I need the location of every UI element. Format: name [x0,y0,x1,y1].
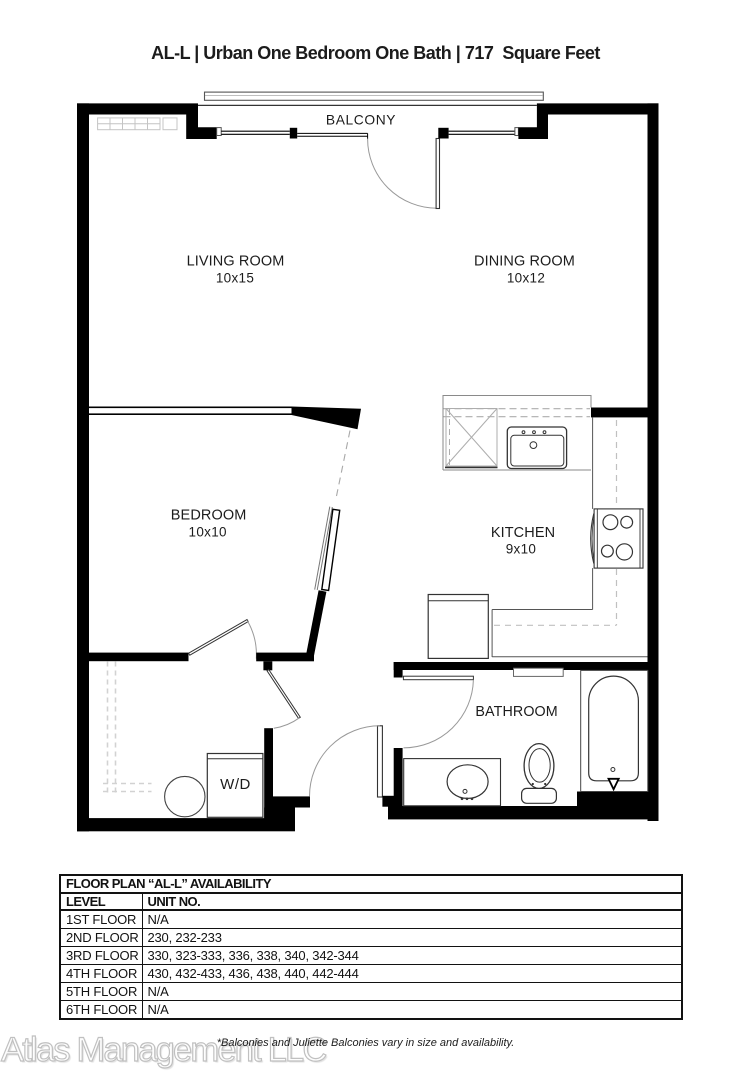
svg-text:KITCHEN: KITCHEN [491,525,555,541]
svg-text:DINING ROOM: DINING ROOM [474,254,575,270]
svg-text:9x10: 9x10 [506,542,536,557]
svg-text:10x10: 10x10 [189,525,227,540]
svg-text:LIVING ROOM: LIVING ROOM [187,254,285,270]
svg-text:10x15: 10x15 [216,271,254,286]
svg-text:BATHROOM: BATHROOM [475,704,557,720]
svg-text:10x12: 10x12 [507,271,545,286]
svg-text:W/D: W/D [220,776,251,793]
svg-text:BEDROOM: BEDROOM [171,508,247,524]
svg-text:BALCONY: BALCONY [326,113,396,128]
